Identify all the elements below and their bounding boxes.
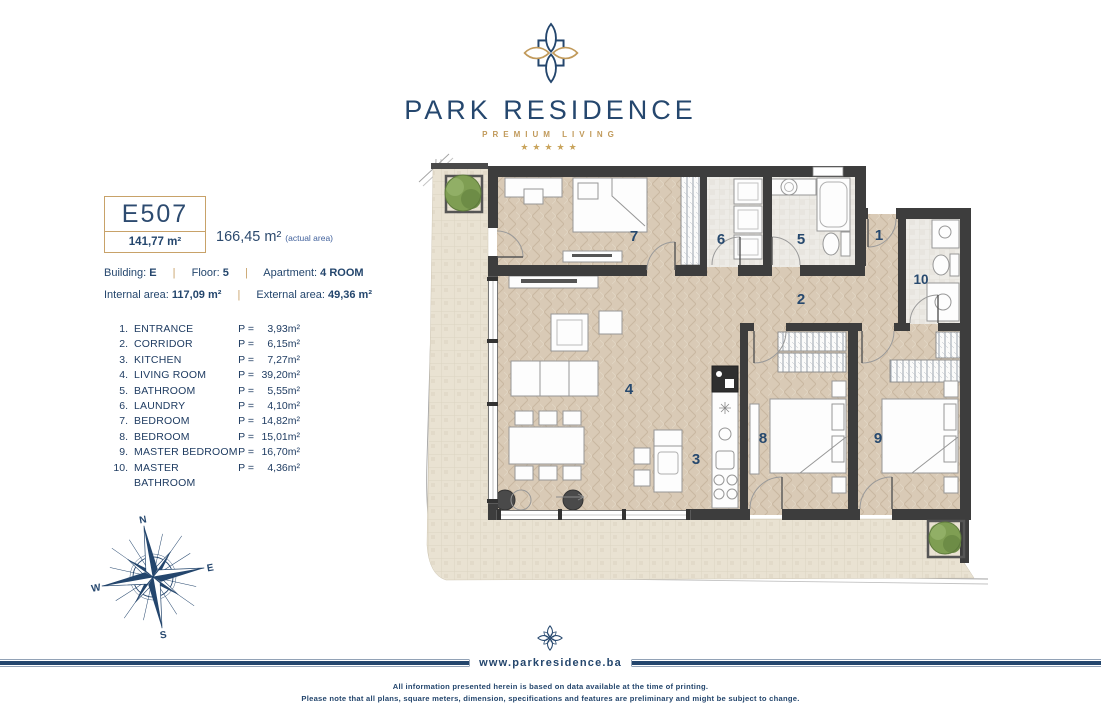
room-area: 4,36m²: [254, 461, 300, 492]
vanity-counter: [932, 220, 959, 248]
room-number: 6.: [104, 399, 128, 414]
room-name: KITCHEN: [134, 353, 238, 368]
area-prefix: P =: [238, 384, 254, 399]
room-name: LAUNDRY: [134, 399, 238, 414]
room-list-item: 1.ENTRANCEP =3,93m²: [104, 322, 300, 337]
room-area: 39,20m²: [254, 368, 300, 383]
room-name: MASTER BEDROOM: [134, 445, 238, 460]
toilet: [933, 255, 949, 275]
footer-rule-right: [632, 660, 1101, 666]
unit-code-box: E507 141,77 m²: [104, 196, 206, 253]
disclaimer-line-1: All information presented herein is base…: [0, 682, 1101, 691]
dining-table: [509, 427, 584, 464]
plan-label-master-bathroom: 10: [913, 272, 928, 287]
room-name: ENTRANCE: [134, 322, 238, 337]
tree-north: [445, 175, 482, 212]
plan-label-bedroom7: 7: [630, 228, 638, 245]
unit-code: E507: [105, 197, 205, 231]
external-area-label: External area:: [256, 289, 324, 301]
room-area: 15,01m²: [254, 430, 300, 445]
floor-value: 5: [223, 267, 229, 279]
compass-east-label: E: [206, 562, 215, 574]
terrace-wall: [431, 163, 488, 169]
plan-label-living-room: 4: [625, 381, 634, 398]
toilet-tank: [841, 232, 850, 256]
room-name: CORRIDOR: [134, 337, 238, 352]
area-prefix: P =: [238, 353, 254, 368]
room-number: 2.: [104, 337, 128, 352]
desk-chair: [524, 189, 543, 204]
internal-area-value: 117,09 m²: [172, 289, 222, 301]
bathtub: [817, 178, 850, 231]
floor-plan: 1 2 3 4 5 6 7 8 9 10: [408, 148, 1000, 612]
area-prefix: P =: [238, 368, 254, 383]
room-area: 5,55m²: [254, 384, 300, 399]
room-area: 4,10m²: [254, 399, 300, 414]
actual-area-note: (actual area): [285, 233, 333, 243]
compass-rose: N E S W: [88, 512, 218, 642]
room-list-item: 6.LAUNDRYP =4,10m²: [104, 399, 300, 414]
apartment-label: Apartment:: [263, 267, 317, 279]
sofa: [511, 361, 598, 396]
brand-tagline: PREMIUM LIVING: [0, 130, 1101, 139]
nightstand: [832, 381, 846, 397]
room-name: BATHROOM: [134, 384, 238, 399]
compass-south-label: S: [159, 630, 168, 642]
brand-logo-icon: [508, 20, 594, 86]
toilet: [823, 233, 839, 255]
plan-label-corridor: 2: [797, 291, 805, 308]
stool: [634, 470, 650, 486]
tv: [521, 279, 577, 283]
room-number: 8.: [104, 430, 128, 445]
side-table: [599, 311, 622, 334]
closet-bedroom9-a: [936, 332, 960, 358]
external-area-value: 49,36 m²: [328, 289, 372, 301]
room-number: 1.: [104, 322, 128, 337]
room-number: 7.: [104, 414, 128, 429]
plan-label-bathroom: 5: [797, 231, 805, 248]
closet-bedroom8-b: [778, 353, 846, 372]
window-bathroom: [813, 167, 843, 176]
room-name: MASTER BATHROOM: [134, 461, 238, 492]
room-list-item: 3.KITCHENP =7,27m²: [104, 353, 300, 368]
nightstand: [832, 477, 846, 493]
chair: [515, 411, 533, 425]
floor-label: Floor:: [192, 267, 220, 279]
chair: [539, 411, 557, 425]
laundry-machines: [734, 179, 762, 259]
nightstand: [944, 381, 958, 397]
room-area: 6,15m²: [254, 337, 300, 352]
room-list-item: 10.MASTER BATHROOMP =4,36m²: [104, 461, 300, 492]
chair: [539, 466, 557, 480]
compass-north-label: N: [138, 514, 147, 526]
apartment-value: 4 ROOM: [320, 267, 363, 279]
room-list-item: 5.BATHROOMP =5,55m²: [104, 384, 300, 399]
closet-bedroom9-b: [890, 360, 960, 382]
room-list-item: 2.CORRIDORP =6,15m²: [104, 337, 300, 352]
tv: [572, 254, 612, 257]
brand-name: PARK RESIDENCE: [0, 95, 1101, 126]
room-list-item: 8.BEDROOMP =15,01m²: [104, 430, 300, 445]
footer-rule: www.parkresidence.ba: [0, 657, 1101, 669]
closet-bedroom8-a: [778, 332, 846, 351]
room-area: 3,93m²: [254, 322, 300, 337]
compass-west-label: W: [91, 582, 103, 595]
closet-corridor: [681, 172, 701, 265]
area-prefix: P =: [238, 322, 254, 337]
divider: |: [238, 289, 241, 301]
room-number: 9.: [104, 445, 128, 460]
room-area: 7,27m²: [254, 353, 300, 368]
room-list-item: 7.BEDROOMP =14,82m²: [104, 414, 300, 429]
room-area: 16,70m²: [254, 445, 300, 460]
footer-rule-left: [0, 660, 469, 666]
pouf: [563, 490, 583, 510]
building-value: E: [149, 267, 156, 279]
plan-label-entrance: 1: [875, 227, 883, 244]
plan-label-master-bedroom: 9: [874, 430, 882, 447]
divider: |: [245, 267, 248, 279]
area-prefix: P =: [238, 414, 254, 429]
slim-wardrobe: [750, 404, 759, 474]
room-legend: 1.ENTRANCEP =3,93m² 2.CORRIDORP =6,15m² …: [104, 322, 300, 491]
room-number: 10.: [104, 461, 128, 492]
area-prefix: P =: [238, 445, 254, 460]
disclaimer-line-2: Please note that all plans, square meter…: [0, 694, 1101, 703]
room-name: LIVING ROOM: [134, 368, 238, 383]
chair: [563, 466, 581, 480]
area-prefix: P =: [238, 399, 254, 414]
stool: [634, 448, 650, 464]
room-list-item: 9.MASTER BEDROOMP =16,70m²: [104, 445, 300, 460]
room-list-item: 4.LIVING ROOMP =39,20m²: [104, 368, 300, 383]
divider: |: [173, 267, 176, 279]
room-number: 4.: [104, 368, 128, 383]
building-label: Building:: [104, 267, 146, 279]
pillow: [578, 183, 598, 199]
chair: [563, 411, 581, 425]
plan-label-laundry: 6: [717, 231, 725, 248]
room-name: BEDROOM: [134, 430, 238, 445]
room-number: 3.: [104, 353, 128, 368]
area-prefix: P =: [238, 337, 254, 352]
unit-actual-area: 166,45 m²(actual area): [216, 229, 333, 245]
brochure-page: PARK RESIDENCE PREMIUM LIVING ★★★★★ E507…: [0, 0, 1101, 721]
pillow: [832, 404, 844, 430]
room-area: 14,82m²: [254, 414, 300, 429]
pillow: [944, 404, 956, 430]
nightstand: [944, 477, 958, 493]
plan-label-bedroom8: 8: [759, 430, 767, 447]
toilet-tank: [950, 254, 959, 276]
room-number: 5.: [104, 384, 128, 399]
area-prefix: P =: [238, 430, 254, 445]
unit-net-area: 141,77 m²: [105, 231, 205, 252]
plan-label-kitchen: 3: [692, 451, 700, 468]
area-prefix: P =: [238, 461, 254, 492]
actual-area-value: 166,45 m²: [216, 229, 281, 245]
internal-area-label: Internal area:: [104, 289, 169, 301]
detail-row-2: Internal area: 117,09 m² | External area…: [104, 289, 372, 301]
website-link[interactable]: www.parkresidence.ba: [479, 657, 622, 669]
detail-row-1: Building: E | Floor: 5 | Apartment: 4 RO…: [104, 267, 364, 279]
chair: [515, 466, 533, 480]
brand-header: PARK RESIDENCE PREMIUM LIVING ★★★★★: [0, 20, 1101, 153]
shower: [927, 283, 959, 321]
room-name: BEDROOM: [134, 414, 238, 429]
footer-ornament-icon: [536, 623, 564, 653]
